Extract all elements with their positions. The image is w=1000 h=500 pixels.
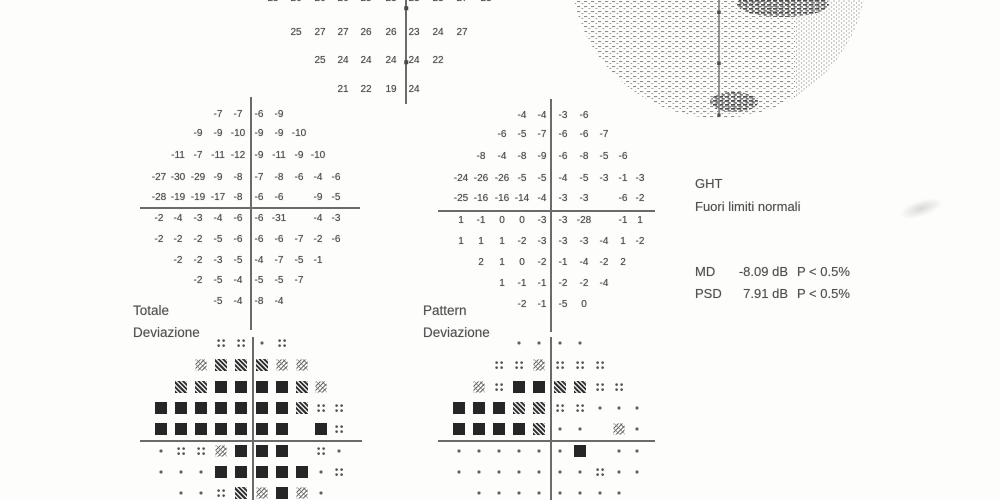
grid-value: 1 xyxy=(637,216,643,226)
grid-value: 23 xyxy=(408,28,419,38)
grid-value: 22 xyxy=(360,85,371,95)
probability-symbol-dot xyxy=(458,450,461,453)
probability-symbol-dot xyxy=(538,342,541,345)
axis-tick xyxy=(404,60,408,64)
grayscale-axis-tick xyxy=(717,114,720,117)
probability-symbol-p5 xyxy=(217,489,225,497)
grid-value: -6 xyxy=(275,235,284,245)
grid-value: 1 xyxy=(499,279,505,289)
probability-symbol-dot xyxy=(579,342,582,345)
probability-symbol-p2 xyxy=(316,382,327,393)
grid-value: -10 xyxy=(311,151,325,161)
probability-symbol-p5 xyxy=(197,447,205,455)
probability-symbol-dot xyxy=(160,471,163,474)
probability-symbol-p2 xyxy=(474,382,485,393)
pattern-probability-axis-horizontal xyxy=(438,440,655,442)
grid-value: -2 xyxy=(518,300,527,310)
grid-value: -9 xyxy=(214,173,223,183)
grid-value: -1 xyxy=(314,256,323,266)
probability-symbol-p5 xyxy=(596,361,604,369)
pattern-deviation-axis-horizontal xyxy=(438,210,655,212)
probability-symbol-p2 xyxy=(216,446,227,457)
grid-value: -3 xyxy=(600,174,609,184)
grid-value: -27 xyxy=(152,173,166,183)
grid-value: -3 xyxy=(580,237,589,247)
pattern-probability-axis-vertical xyxy=(550,337,552,500)
grid-value: -9 xyxy=(194,129,203,139)
grid-value: -1 xyxy=(477,216,486,226)
grayscale-axis-tick xyxy=(717,11,721,15)
grid-value: -9 xyxy=(255,151,264,161)
grid-value: -4 xyxy=(580,258,589,268)
grid-value: 0 xyxy=(499,216,505,226)
axis-tick xyxy=(404,6,408,10)
grid-value: -3 xyxy=(214,256,223,266)
grid-value: -7 xyxy=(194,151,203,161)
grid-value: -6 xyxy=(580,130,589,140)
probability-symbol-p2 xyxy=(196,360,207,371)
grid-value: -4 xyxy=(600,237,609,247)
probability-symbol-p05 xyxy=(256,381,268,393)
ght-title: GHT xyxy=(695,176,722,191)
grid-value: -24 xyxy=(454,174,468,184)
grid-value: -6 xyxy=(619,194,628,204)
grid-value: -4 xyxy=(234,276,243,286)
probability-symbol-p05 xyxy=(493,423,505,435)
grid-value: -8 xyxy=(580,152,589,162)
probability-symbol-dot xyxy=(636,450,639,453)
grayscale-plot xyxy=(563,0,878,125)
probability-symbol-p05 xyxy=(215,466,227,478)
grid-value: -6 xyxy=(295,173,304,183)
probability-symbol-p5 xyxy=(237,339,245,347)
grid-value: -4 xyxy=(214,214,223,224)
grid-value: -5 xyxy=(538,174,547,184)
probability-symbol-p05 xyxy=(235,423,247,435)
probability-symbol-dot xyxy=(518,450,521,453)
grid-value: 26 xyxy=(385,28,396,38)
pattern-deviation-title-line1: Pattern xyxy=(423,303,467,318)
probability-symbol-dot xyxy=(338,450,341,453)
probability-symbol-dot xyxy=(579,428,582,431)
grid-value: -6 xyxy=(559,152,568,162)
probability-symbol-p1 xyxy=(256,359,268,371)
probability-symbol-dot xyxy=(478,492,481,495)
grid-value: 26 xyxy=(314,0,325,4)
grid-value: 23 xyxy=(385,0,396,4)
probability-symbol-p05 xyxy=(315,423,327,435)
grid-value: -6 xyxy=(275,193,284,203)
probability-symbol-dot xyxy=(636,471,639,474)
grid-value: 24 xyxy=(360,56,371,66)
probability-symbol-p05 xyxy=(473,402,485,414)
probability-symbol-p5 xyxy=(278,339,286,347)
grid-value: 24 xyxy=(408,85,419,95)
grid-value: 1 xyxy=(499,258,505,268)
grid-value: -5 xyxy=(332,193,341,203)
probability-symbol-p05 xyxy=(175,423,187,435)
grid-value: -5 xyxy=(580,174,589,184)
grid-value: -11 xyxy=(211,151,225,161)
grid-value: -5 xyxy=(234,256,243,266)
probability-symbol-dot xyxy=(538,450,541,453)
grid-value: -4 xyxy=(255,256,264,266)
probability-symbol-p1 xyxy=(235,359,247,371)
ght-result: Fuori limiti normali xyxy=(695,199,800,214)
probability-symbol-dot xyxy=(599,407,602,410)
probability-symbol-p2 xyxy=(297,488,308,499)
grid-value: -9 xyxy=(314,193,323,203)
total-probability-axis-horizontal xyxy=(140,440,362,442)
grid-value: -7 xyxy=(600,130,609,140)
probability-symbol-p1 xyxy=(175,381,187,393)
probability-symbol-p1 xyxy=(195,381,207,393)
probability-symbol-dot xyxy=(180,471,183,474)
grid-value: -2 xyxy=(580,279,589,289)
grid-value: -9 xyxy=(275,129,284,139)
probability-symbol-p5 xyxy=(217,339,225,347)
grid-value: -4 xyxy=(518,111,527,121)
grid-value: 26 xyxy=(290,0,301,4)
grid-value: -16 xyxy=(495,194,509,204)
grid-value: -16 xyxy=(474,194,488,204)
grid-value: -7 xyxy=(255,173,264,183)
grid-value: -2 xyxy=(155,214,164,224)
grid-value: -8 xyxy=(518,152,527,162)
total-deviation-axis-vertical xyxy=(250,97,252,330)
probability-symbol-dot xyxy=(636,428,639,431)
probability-symbol-p1 xyxy=(574,381,586,393)
grid-value: -9 xyxy=(538,152,547,162)
grid-value: -4 xyxy=(275,297,284,307)
grid-value: -10 xyxy=(292,129,306,139)
grid-value: -7 xyxy=(214,110,223,120)
probability-symbol-p5 xyxy=(576,361,584,369)
grid-value: -2 xyxy=(600,258,609,268)
grid-value: -4 xyxy=(234,297,243,307)
grid-value: -5 xyxy=(295,256,304,266)
grid-value: 26 xyxy=(337,0,348,4)
grid-value: -2 xyxy=(636,237,645,247)
grid-value: -31 xyxy=(272,214,286,224)
grid-value: -6 xyxy=(234,214,243,224)
probability-symbol-dot xyxy=(559,428,562,431)
probability-symbol-p5 xyxy=(515,361,523,369)
grid-value: 27 xyxy=(314,28,325,38)
grid-value: -4 xyxy=(174,214,183,224)
grid-value: 24 xyxy=(432,28,443,38)
grid-value: -4 xyxy=(538,194,547,204)
grid-value: -5 xyxy=(214,276,223,286)
probability-symbol-p05 xyxy=(235,402,247,414)
grid-value: -14 xyxy=(515,194,529,204)
grid-value: -19 xyxy=(171,193,185,203)
probability-symbol-p05 xyxy=(276,466,288,478)
grayscale-axis-tick xyxy=(717,62,721,66)
probability-symbol-dot xyxy=(559,450,562,453)
grid-value: -4 xyxy=(314,214,323,224)
grid-value: -8 xyxy=(275,173,284,183)
grid-value: -3 xyxy=(559,216,568,226)
probability-symbol-p05 xyxy=(235,445,247,457)
grid-value: -5 xyxy=(255,276,264,286)
grid-value: -2 xyxy=(559,279,568,289)
probability-symbol-dot xyxy=(579,492,582,495)
probability-symbol-p05 xyxy=(473,423,485,435)
probability-symbol-p5 xyxy=(615,383,623,391)
grid-value: -6 xyxy=(332,235,341,245)
grid-value: 27 xyxy=(456,0,467,4)
probability-symbol-p05 xyxy=(235,381,247,393)
grid-value: -1 xyxy=(518,279,527,289)
grid-value: -2 xyxy=(174,235,183,245)
grid-value: -2 xyxy=(538,258,547,268)
grid-value: -1 xyxy=(538,300,547,310)
probability-symbol-p05 xyxy=(533,381,545,393)
grid-value: -1 xyxy=(619,216,628,226)
grid-value: -4 xyxy=(559,174,568,184)
probability-symbol-dot xyxy=(599,492,602,495)
probability-symbol-p5 xyxy=(335,425,343,433)
grid-value: -3 xyxy=(559,237,568,247)
probability-symbol-dot xyxy=(478,471,481,474)
grid-value: -19 xyxy=(191,193,205,203)
visual-field-report-page: 2526262625232323272325272726262324272524… xyxy=(0,0,1000,500)
probability-symbol-dot xyxy=(200,492,203,495)
probability-symbol-p2 xyxy=(277,360,288,371)
grid-value: -28 xyxy=(152,193,166,203)
total-deviation-title-line2: Deviazione xyxy=(133,325,200,340)
probability-symbol-dot xyxy=(618,471,621,474)
probability-symbol-p05 xyxy=(155,402,167,414)
probability-symbol-p05 xyxy=(235,466,247,478)
grid-value: -8 xyxy=(255,297,264,307)
grid-value: 24 xyxy=(408,56,419,66)
probability-symbol-dot xyxy=(618,407,621,410)
probability-symbol-dot xyxy=(518,492,521,495)
grid-value: -3 xyxy=(538,237,547,247)
grid-value: -30 xyxy=(171,173,185,183)
probability-symbol-p05 xyxy=(276,487,288,499)
probability-symbol-dot xyxy=(518,471,521,474)
grid-value: -26 xyxy=(495,174,509,184)
probability-symbol-p5 xyxy=(556,404,564,412)
grid-value: -4 xyxy=(498,152,507,162)
grid-value: -26 xyxy=(474,174,488,184)
grid-value: 24 xyxy=(337,56,348,66)
grid-value: -2 xyxy=(174,256,183,266)
probability-symbol-p05 xyxy=(256,423,268,435)
grid-value: 23 xyxy=(432,0,443,4)
probability-symbol-dot xyxy=(559,492,562,495)
probability-symbol-p5 xyxy=(596,383,604,391)
grid-value: -7 xyxy=(295,276,304,286)
grid-value: 23 xyxy=(408,0,419,4)
probability-symbol-dot xyxy=(498,492,501,495)
grid-value: -11 xyxy=(272,151,286,161)
md-label: MD xyxy=(695,264,715,279)
probability-symbol-p05 xyxy=(453,423,465,435)
probability-symbol-dot xyxy=(579,471,582,474)
grid-value: -6 xyxy=(559,130,568,140)
grid-value: 25 xyxy=(360,0,371,4)
grid-value: 26 xyxy=(360,28,371,38)
grid-value: -2 xyxy=(155,235,164,245)
grid-value: -4 xyxy=(600,279,609,289)
pattern-deviation-title-line2: Deviazione xyxy=(423,325,490,340)
grid-value: -6 xyxy=(255,214,264,224)
total-deviation-axis-horizontal xyxy=(140,207,360,209)
grid-value: -7 xyxy=(275,256,284,266)
total-deviation-title-line1: Totale xyxy=(133,303,169,318)
probability-symbol-dot xyxy=(478,450,481,453)
grid-value: 27 xyxy=(337,28,348,38)
grid-value: -9 xyxy=(214,129,223,139)
probability-symbol-dot xyxy=(498,450,501,453)
grid-value: 0 xyxy=(519,216,525,226)
probability-symbol-p05 xyxy=(493,402,505,414)
probability-symbol-p1 xyxy=(296,381,308,393)
probability-symbol-p05 xyxy=(175,402,187,414)
grid-value: -3 xyxy=(332,214,341,224)
grid-value: -1 xyxy=(538,279,547,289)
probability-symbol-p05 xyxy=(256,466,268,478)
grid-value: 22 xyxy=(432,56,443,66)
grid-value: -9 xyxy=(275,110,284,120)
grid-value: -3 xyxy=(559,194,568,204)
probability-symbol-dot xyxy=(559,342,562,345)
probability-symbol-p05 xyxy=(215,402,227,414)
probability-symbol-p1 xyxy=(533,402,545,414)
probability-symbol-p05 xyxy=(453,402,465,414)
probability-symbol-p5 xyxy=(495,383,503,391)
probability-symbol-p1 xyxy=(513,402,525,414)
grid-value: -2 xyxy=(518,237,527,247)
grid-value: -7 xyxy=(234,110,243,120)
grid-value: -9 xyxy=(295,151,304,161)
grid-value: 1 xyxy=(458,237,464,247)
probability-symbol-dot xyxy=(636,407,639,410)
probability-symbol-p2 xyxy=(614,424,625,435)
probability-symbol-p5 xyxy=(317,404,325,412)
probability-symbol-p1 xyxy=(554,381,566,393)
probability-symbol-p05 xyxy=(256,445,268,457)
probability-symbol-dot xyxy=(618,492,621,495)
grid-value: -2 xyxy=(194,235,203,245)
grid-value: -3 xyxy=(580,194,589,204)
grid-value: -6 xyxy=(619,152,628,162)
grid-value: -1 xyxy=(559,258,568,268)
grid-value: -3 xyxy=(538,216,547,226)
probability-symbol-dot xyxy=(261,342,264,345)
grid-value: 1 xyxy=(499,237,505,247)
grid-value: -2 xyxy=(194,256,203,266)
probability-symbol-dot xyxy=(538,492,541,495)
grid-value: -5 xyxy=(275,276,284,286)
psd-significance: P < 0.5% xyxy=(797,286,850,301)
grid-value: 1 xyxy=(478,237,484,247)
probability-symbol-p05 xyxy=(574,445,586,457)
grid-value: 25 xyxy=(267,0,278,4)
grid-value: -6 xyxy=(332,173,341,183)
probability-symbol-p05 xyxy=(276,445,288,457)
probability-symbol-p2 xyxy=(534,360,545,371)
probability-symbol-dot xyxy=(518,342,521,345)
probability-symbol-p05 xyxy=(276,381,288,393)
grid-value: 0 xyxy=(581,300,587,310)
probability-symbol-dot xyxy=(320,471,323,474)
probability-symbol-p05 xyxy=(215,423,227,435)
probability-symbol-dot xyxy=(320,492,323,495)
grayscale-dark-patch-bottom xyxy=(710,92,758,112)
probability-symbol-p05 xyxy=(276,402,288,414)
grid-value: -12 xyxy=(231,151,245,161)
probability-symbol-p5 xyxy=(317,447,325,455)
probability-symbol-p05 xyxy=(195,423,207,435)
probability-symbol-p05 xyxy=(513,381,525,393)
probability-symbol-p5 xyxy=(335,404,343,412)
probability-symbol-dot xyxy=(538,471,541,474)
probability-symbol-p1 xyxy=(215,359,227,371)
grid-value: -3 xyxy=(636,174,645,184)
probability-symbol-p05 xyxy=(296,466,308,478)
grid-value: -5 xyxy=(559,300,568,310)
grid-value: -17 xyxy=(211,193,225,203)
probability-symbol-p5 xyxy=(495,361,503,369)
grid-value: 1 xyxy=(620,237,626,247)
grid-value: -4 xyxy=(314,173,323,183)
probability-symbol-dot xyxy=(200,471,203,474)
grid-value: -8 xyxy=(234,193,243,203)
grid-value: 27 xyxy=(456,28,467,38)
probability-symbol-p05 xyxy=(513,423,525,435)
probability-symbol-p1 xyxy=(235,487,247,499)
probability-symbol-p1 xyxy=(533,423,545,435)
pattern-deviation-axis-vertical xyxy=(550,99,552,332)
grid-value: -29 xyxy=(191,173,205,183)
probability-symbol-p1 xyxy=(296,402,308,414)
grid-value: 0 xyxy=(519,258,525,268)
probability-symbol-p5 xyxy=(576,404,584,412)
grid-value: -2 xyxy=(194,276,203,286)
grid-value: -2 xyxy=(314,235,323,245)
probability-symbol-p05 xyxy=(276,423,288,435)
psd-label: PSD xyxy=(695,286,722,301)
grid-value: -8 xyxy=(477,152,486,162)
probability-symbol-p5 xyxy=(556,361,564,369)
total-probability-axis-vertical xyxy=(252,337,254,500)
probability-symbol-p2 xyxy=(257,488,268,499)
grid-value: 23 xyxy=(480,0,491,4)
grid-value: -3 xyxy=(194,214,203,224)
grid-value: -5 xyxy=(214,297,223,307)
probability-symbol-p2 xyxy=(297,360,308,371)
grid-value: -5 xyxy=(600,152,609,162)
grid-value: -6 xyxy=(498,130,507,140)
grid-value: -6 xyxy=(255,110,264,120)
probability-symbol-p5 xyxy=(335,468,343,476)
grid-value: 25 xyxy=(314,56,325,66)
grid-value: 1 xyxy=(458,216,464,226)
grid-value: 24 xyxy=(385,56,396,66)
grid-value: 2 xyxy=(478,258,484,268)
grid-value: -6 xyxy=(255,193,264,203)
grid-value: -7 xyxy=(295,235,304,245)
probability-symbol-p05 xyxy=(195,402,207,414)
threshold-axis-vertical xyxy=(405,0,407,104)
grid-value: -9 xyxy=(255,129,264,139)
grid-value: -5 xyxy=(518,174,527,184)
